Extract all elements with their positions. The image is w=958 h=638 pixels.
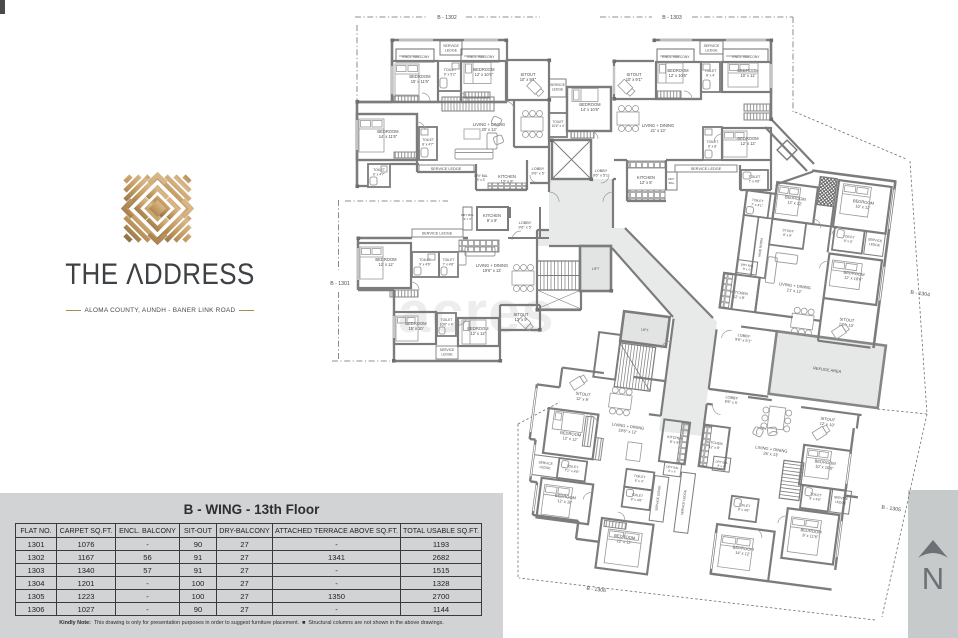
svg-text:B - 1304: B - 1304: [910, 290, 930, 299]
svg-text:TOILET: TOILET: [705, 69, 717, 73]
svg-text:TOILET: TOILET: [707, 140, 719, 144]
svg-text:9' x 11'6": 9' x 11'6": [802, 532, 819, 539]
svg-text:MAID ROOM: MAID ROOM: [757, 238, 763, 257]
svg-text:ENCL. BALCONY: ENCL. BALCONY: [732, 55, 760, 59]
svg-text:TOILET: TOILET: [441, 318, 453, 322]
svg-text:TOILET: TOILET: [443, 258, 455, 262]
svg-text:14' x 10'6": 14' x 10'6": [581, 107, 600, 112]
svg-text:8' x 4': 8' x 4': [743, 267, 752, 272]
svg-text:10'6" x 4': 10'6" x 4': [440, 323, 454, 327]
svg-text:7'1" x 4'6": 7'1" x 4'6": [564, 468, 580, 474]
svg-text:9' x 4'6": 9' x 4'6": [419, 263, 432, 267]
svg-text:26' x 13': 26' x 13': [763, 451, 779, 458]
svg-text:15' x 10': 15' x 10': [409, 326, 424, 331]
svg-text:8' x 4'7": 8' x 4'7": [422, 143, 435, 147]
svg-text:8' x 4': 8' x 4': [706, 74, 715, 78]
svg-text:8' x 5': 8' x 5': [844, 239, 853, 244]
svg-text:LEDGE: LEDGE: [835, 500, 847, 506]
svg-text:LEDGE: LEDGE: [441, 353, 453, 357]
svg-text:LOBBY: LOBBY: [595, 169, 608, 173]
svg-text:B - 1306: B - 1306: [586, 586, 606, 595]
svg-text:12' x 8': 12' x 8': [708, 445, 720, 450]
svg-text:6' x 8': 6' x 8': [708, 145, 717, 149]
svg-text:SERVICE LEDGE: SERVICE LEDGE: [654, 485, 661, 511]
svg-text:12' x 8': 12' x 8': [640, 180, 653, 185]
svg-text:12' x 12': 12' x 12': [787, 200, 803, 207]
svg-text:SERVICE LEDGE: SERVICE LEDGE: [422, 232, 453, 236]
svg-text:12' x 12': 12' x 12': [379, 262, 394, 267]
svg-text:9'6" x 5'1": 9'6" x 5'1": [593, 174, 610, 178]
svg-text:14' x 11'6": 14' x 11'6": [379, 134, 398, 139]
svg-text:SERVICE: SERVICE: [440, 348, 455, 352]
svg-text:19'6" x 13': 19'6" x 13': [483, 268, 502, 273]
svg-text:9' x 8': 9' x 8': [487, 218, 498, 223]
svg-text:12' x 9': 12' x 9': [576, 396, 589, 403]
svg-text:B - 1301: B - 1301: [330, 281, 350, 287]
svg-text:21' x 13': 21' x 13': [651, 128, 666, 133]
svg-text:9'6" x 5': 9'6" x 5': [531, 172, 544, 176]
svg-text:7' x 4'6": 7' x 4'6": [749, 180, 762, 184]
svg-text:19'6" x 12': 19'6" x 12': [618, 427, 637, 434]
svg-text:TOILET: TOILET: [373, 168, 385, 172]
svg-text:12' x 12': 12' x 12': [471, 331, 486, 336]
svg-text:6' x 4': 6' x 4': [635, 479, 644, 484]
svg-text:ENCL. BALCONY: ENCL. BALCONY: [662, 55, 690, 59]
svg-text:20' x 13': 20' x 13': [482, 127, 497, 132]
svg-text:7' x 4'6": 7' x 4'6": [443, 263, 456, 267]
svg-text:8' x 4': 8' x 4': [668, 469, 677, 474]
svg-text:14' x 12': 14' x 12': [735, 550, 751, 557]
svg-text:21' x 12': 21' x 12': [787, 287, 803, 294]
svg-text:LEDGE: LEDGE: [552, 88, 564, 92]
svg-text:9'6" x 5': 9'6" x 5': [518, 226, 531, 230]
svg-text:9'6" x 5'1": 9'6" x 5'1": [735, 337, 753, 343]
svg-text:9' x 3': 9' x 3': [464, 217, 472, 221]
svg-text:SERVICE LEDGE: SERVICE LEDGE: [680, 490, 687, 516]
svg-text:LIFT: LIFT: [592, 267, 600, 271]
svg-text:LEDGE: LEDGE: [869, 242, 881, 248]
svg-text:B - 1305: B - 1305: [881, 505, 901, 514]
svg-text:LOBBY: LOBBY: [519, 221, 532, 225]
svg-text:12' x 12': 12' x 12': [741, 141, 756, 146]
svg-text:TOILET: TOILET: [444, 68, 457, 72]
svg-text:SERVICE: SERVICE: [704, 44, 720, 48]
svg-text:9'6" x 5': 9'6" x 5': [724, 400, 738, 406]
svg-text:BAL: BAL: [669, 181, 675, 185]
svg-text:LEDGE: LEDGE: [705, 49, 718, 53]
svg-text:12' x 8': 12' x 8': [733, 295, 745, 301]
svg-text:8' x 4'6": 8' x 4'6": [809, 496, 822, 502]
svg-text:9' x 5'2": 9' x 5'2": [444, 73, 457, 77]
svg-text:10' x 9'1": 10' x 9'1": [626, 77, 643, 82]
svg-text:15' x 11'6": 15' x 11'6": [411, 79, 430, 84]
svg-text:LEDGE: LEDGE: [445, 49, 458, 53]
svg-text:12' x 12': 12' x 12': [562, 435, 578, 442]
svg-text:SERVICE LEDGE: SERVICE LEDGE: [431, 167, 462, 171]
svg-text:9' x 3': 9' x 3': [477, 178, 486, 182]
svg-text:TOILET: TOILET: [422, 138, 434, 142]
svg-text:SERVICE LEDGE: SERVICE LEDGE: [691, 167, 722, 171]
svg-text:8' x 4'6": 8' x 4'6": [738, 507, 751, 513]
svg-text:10' x 12': 10' x 12': [741, 73, 756, 78]
svg-text:SERVICE: SERVICE: [443, 44, 459, 48]
svg-text:B - 1302: B - 1302: [437, 15, 457, 21]
svg-text:6' x 4'7": 6' x 4'7": [373, 173, 386, 177]
svg-text:12' x 10'6": 12' x 10'6": [669, 73, 688, 78]
svg-text:B - 1303: B - 1303: [662, 15, 682, 21]
svg-text:ENCL. BALCONY: ENCL. BALCONY: [402, 55, 430, 59]
svg-text:10'6" x 4': 10'6" x 4': [552, 124, 565, 128]
svg-text:8' x 8': 8' x 8': [670, 440, 680, 445]
svg-text:ENCL. BALCONY: ENCL. BALCONY: [467, 55, 495, 59]
svg-text:LEDGE: LEDGE: [539, 465, 551, 471]
svg-text:SERVICE: SERVICE: [550, 83, 566, 87]
svg-text:8' x 8': 8' x 8': [783, 233, 792, 238]
svg-text:LOBBY: LOBBY: [532, 167, 545, 171]
svg-text:8' x 4'6": 8' x 4'6": [631, 497, 644, 503]
